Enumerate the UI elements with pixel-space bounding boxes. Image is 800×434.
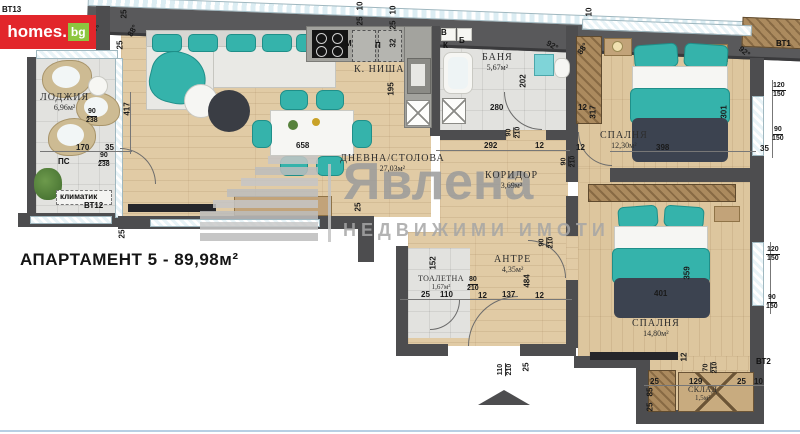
dim-label: 90150: [772, 126, 784, 143]
dim-label: 120150: [766, 246, 780, 263]
loggia-window: [30, 216, 112, 224]
wardrobe-bedroom2: [588, 184, 736, 202]
dim-label: 110210: [497, 363, 514, 376]
bottom-border-line: [0, 430, 800, 432]
cooktop-burner: [316, 33, 327, 44]
dimension-line: [610, 151, 756, 152]
dim-label: 120150: [772, 82, 786, 99]
loggia-table: [88, 76, 108, 96]
dim-label: П: [375, 42, 381, 50]
dim-label: 202: [520, 74, 528, 87]
dim-label: 12: [578, 104, 587, 112]
table-plant-decor: [288, 120, 298, 130]
dim-label: 25: [421, 291, 430, 299]
lamp: [612, 41, 623, 52]
dim-label: 70210: [702, 362, 719, 374]
dining-chair: [316, 90, 344, 110]
room-label: БАНЯ5,67м²: [482, 52, 513, 72]
dim-label: 280: [490, 104, 503, 112]
room-label: ТОАЛЕТНА1,67м²: [418, 274, 464, 291]
loggia-door-window: [115, 58, 123, 218]
dim-label: 25: [118, 230, 126, 239]
dining-chair: [252, 120, 272, 148]
dim-label: 10: [585, 8, 593, 17]
room-label: ДНЕВНА/СТОЛОВА27,03м²: [340, 153, 445, 173]
bathtub-basin: [448, 57, 468, 89]
loggia-glazing: [36, 50, 118, 59]
dim-label: 359: [684, 266, 692, 279]
sofa-pillow: [188, 34, 218, 52]
dim-label: 195: [388, 82, 396, 95]
dim-label: 110: [440, 291, 453, 299]
room-label: СПАЛНЯ12,30м²: [600, 130, 648, 150]
dimension-line: [130, 92, 131, 154]
dim-label: М: [345, 40, 352, 48]
dim-label: 417: [124, 102, 132, 115]
dim-label: ВТ2: [756, 358, 771, 366]
dim-label: 12: [680, 353, 688, 362]
shower-tray: [442, 98, 466, 124]
coffee-table-dark: [208, 90, 250, 132]
wall: [27, 57, 36, 217]
dim-label: 25: [522, 363, 530, 372]
homes-bg-logo: homes. bg: [0, 15, 96, 49]
kitchen-sink-basin: [411, 64, 425, 86]
dim-label: климатик: [60, 193, 97, 201]
logo-text-main: homes.: [7, 22, 67, 42]
tv-unit-bedroom2: [590, 352, 678, 360]
dishwasher: [406, 100, 430, 126]
bed-blanket-dark: [614, 278, 710, 318]
kitchen-appliance-m: [352, 30, 376, 62]
table-bowl-decor: [312, 118, 320, 126]
bedroom2-side-window: [752, 242, 764, 306]
dim-label: ПС: [58, 158, 70, 166]
dim-label: 152: [430, 256, 438, 269]
bed-sheet: [632, 66, 728, 90]
rattan-chair-cushion: [52, 66, 80, 88]
wall: [636, 410, 764, 424]
dining-table: [270, 110, 354, 156]
dim-label: 398: [656, 144, 669, 152]
bath-sink: [534, 54, 554, 76]
room-label: К. НИША: [354, 64, 404, 75]
dining-chair: [352, 120, 372, 148]
dim-label: 317: [590, 105, 598, 118]
room-label: СПАЛНЯ14,80м²: [632, 318, 680, 338]
dim-label: 90238: [98, 152, 110, 169]
yavlena-logo-icon: [200, 156, 318, 248]
sofa-pillow: [226, 34, 256, 52]
dimension-line: [436, 150, 570, 151]
dim-label: 10: [389, 6, 397, 15]
logo-text-tld: bg: [68, 23, 89, 41]
dim-label: 25: [354, 203, 362, 212]
dim-label: 401: [654, 290, 667, 298]
entrance-arrow-icon: [478, 390, 530, 405]
dim-label: 25: [116, 41, 124, 50]
dim-label: 80210: [467, 276, 479, 293]
apartment-title: АПАРТАМЕНТ 5 - 89,98м²: [20, 250, 238, 270]
dim-label: 35: [105, 144, 114, 152]
floorplan: Явлена НЕДВИЖИМИ ИМОТИ ВТ132598°88°25902…: [0, 0, 800, 434]
room-label: КОРИДОР3,69м²: [485, 170, 538, 190]
dim-label: 25: [737, 378, 746, 386]
dim-label: 90210: [538, 237, 555, 249]
dim-label: 90210: [505, 127, 522, 139]
sofa-pillow: [262, 34, 292, 52]
dim-label: 25: [389, 21, 397, 30]
dim-label: 484: [524, 274, 532, 287]
cooktop-burner: [332, 33, 343, 44]
dim-label: ВТ12: [84, 202, 103, 210]
sofa-pillow: [152, 34, 182, 52]
dim-label: 12: [535, 142, 544, 150]
room-label: ЛОДЖИЯ6,96м²: [40, 92, 89, 112]
dim-label: ВТ1: [776, 40, 791, 48]
dim-label: 25: [356, 17, 364, 26]
dim-label: 12: [535, 292, 544, 300]
dim-label: 301: [721, 105, 729, 118]
dim-label: 25: [650, 378, 659, 386]
dim-label: 137: [502, 291, 515, 299]
cooktop-burner: [332, 46, 343, 57]
dim-label: 90210: [560, 156, 577, 168]
dim-label: В: [441, 29, 447, 37]
cooktop-burner: [316, 46, 327, 57]
dim-label: 32: [389, 39, 397, 48]
dim-label: 292: [484, 142, 497, 150]
dim-label: 12: [576, 144, 585, 152]
dining-chair: [280, 90, 308, 110]
dim-label: 25: [646, 403, 654, 412]
dim-label: 85: [646, 388, 654, 397]
dim-label: 25: [120, 10, 128, 19]
dim-label: 10: [754, 378, 763, 386]
dim-label: 170: [76, 144, 89, 152]
toilet-seat-bath: [554, 58, 570, 78]
wall: [396, 246, 408, 350]
dim-label: 90150: [766, 294, 778, 311]
watermark-divider: [328, 164, 331, 242]
dim-label: 10: [356, 2, 364, 11]
watermark-tagline: НЕДВИЖИМИ ИМОТИ: [343, 220, 610, 241]
dim-label: ВТ13: [2, 6, 21, 14]
bed-sheet: [614, 226, 708, 250]
room-label: СКЛАД1,5м²: [688, 385, 717, 402]
dim-label: 12: [478, 292, 487, 300]
dim-label: 35: [760, 145, 769, 153]
dim-label: К: [443, 42, 448, 50]
dim-label: 658: [296, 142, 309, 150]
room-label: АНТРЕ4,35м²: [494, 254, 531, 274]
wall: [396, 344, 448, 356]
nightstand: [714, 206, 740, 222]
dim-label: Б: [459, 37, 465, 45]
